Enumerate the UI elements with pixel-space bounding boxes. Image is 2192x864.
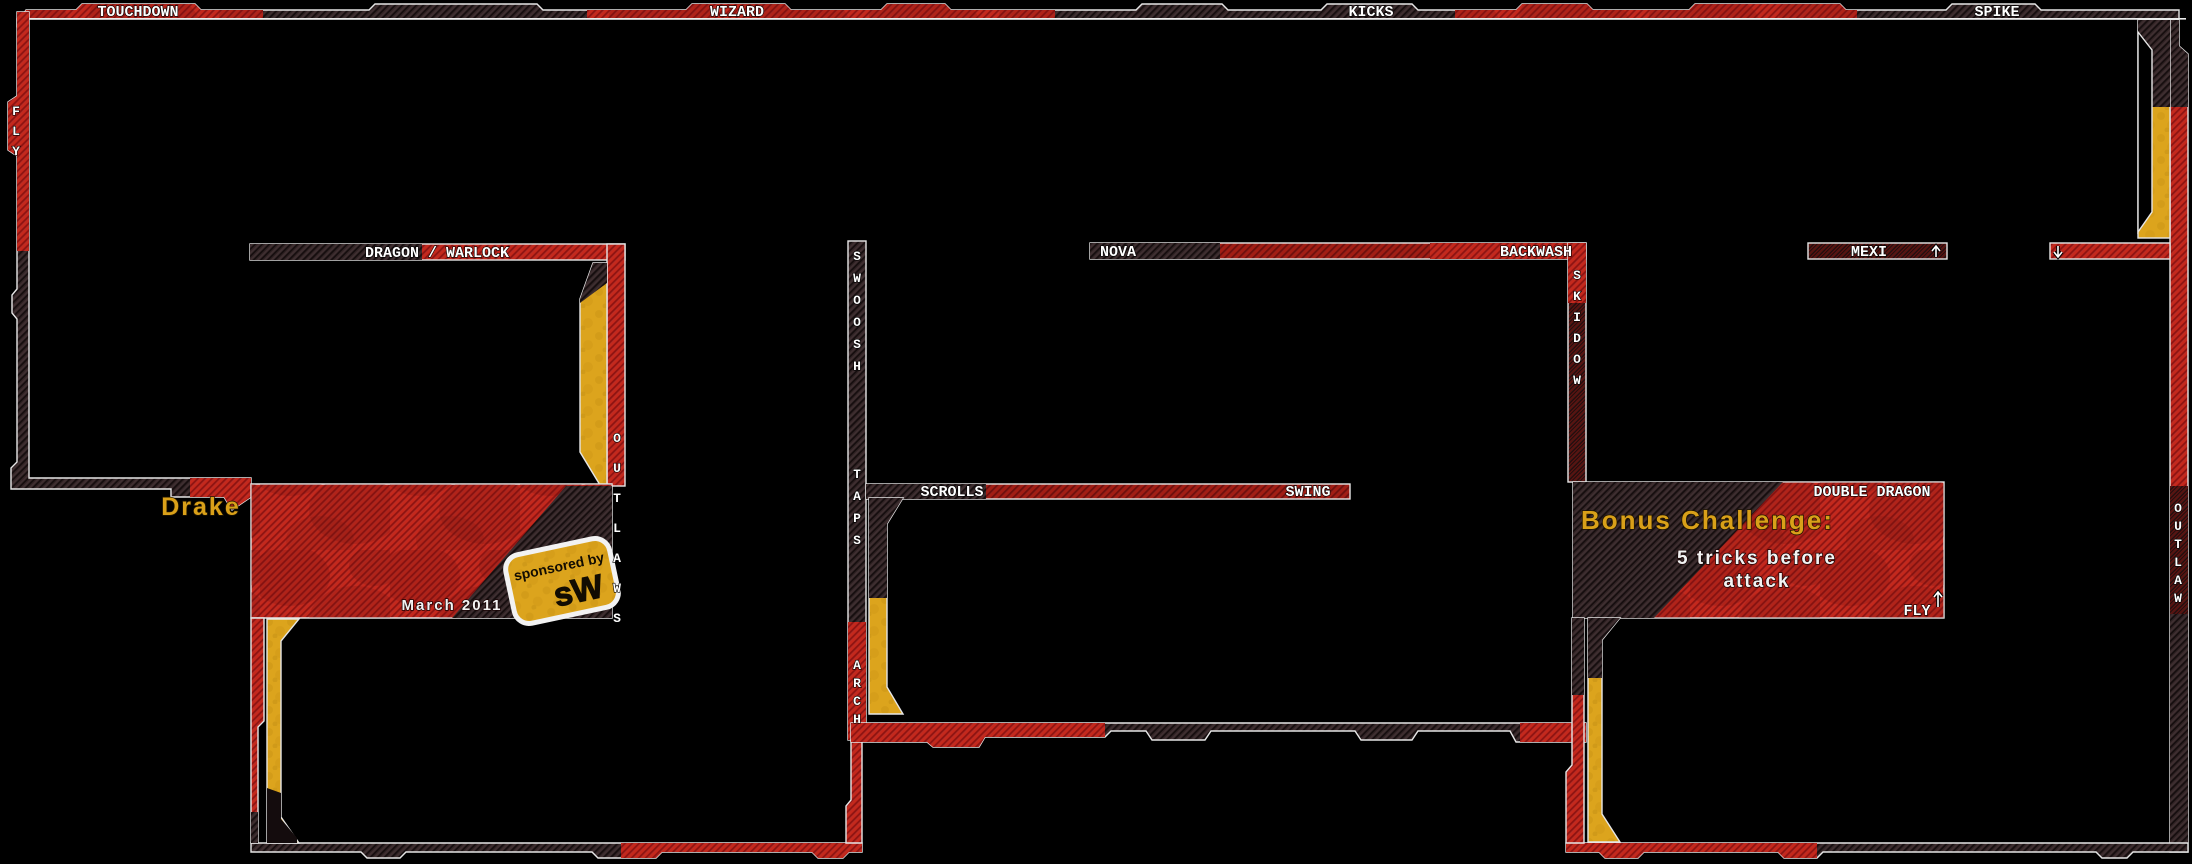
svg-text:5 tricks before: 5 tricks before bbox=[1677, 548, 1837, 569]
svg-text:NOVA: NOVA bbox=[1100, 244, 1136, 261]
svg-text:FLY: FLY bbox=[12, 104, 20, 159]
svg-text:WIZARD: WIZARD bbox=[710, 4, 764, 21]
svg-text:KICKS: KICKS bbox=[1348, 4, 1393, 21]
svg-text:SCROLLS: SCROLLS bbox=[920, 484, 983, 501]
svg-text:SPIKE: SPIKE bbox=[1974, 4, 2019, 21]
svg-text:attack: attack bbox=[1724, 571, 1791, 592]
svg-text:FLY: FLY bbox=[1903, 603, 1930, 620]
svg-text:DOUBLE DRAGON: DOUBLE DRAGON bbox=[1813, 484, 1930, 501]
svg-text:SWING: SWING bbox=[1285, 484, 1330, 501]
svg-text:TOUCHDOWN: TOUCHDOWN bbox=[97, 4, 178, 21]
svg-text:March 2011: March 2011 bbox=[402, 597, 503, 614]
svg-text:Bonus Challenge:: Bonus Challenge: bbox=[1581, 505, 1834, 535]
svg-text:Drake: Drake bbox=[161, 493, 241, 521]
svg-text:MEXI: MEXI bbox=[1851, 244, 1887, 261]
svg-text:DRAGON / WARLOCK: DRAGON / WARLOCK bbox=[365, 245, 509, 262]
svg-text:BACKWASH: BACKWASH bbox=[1500, 244, 1572, 261]
